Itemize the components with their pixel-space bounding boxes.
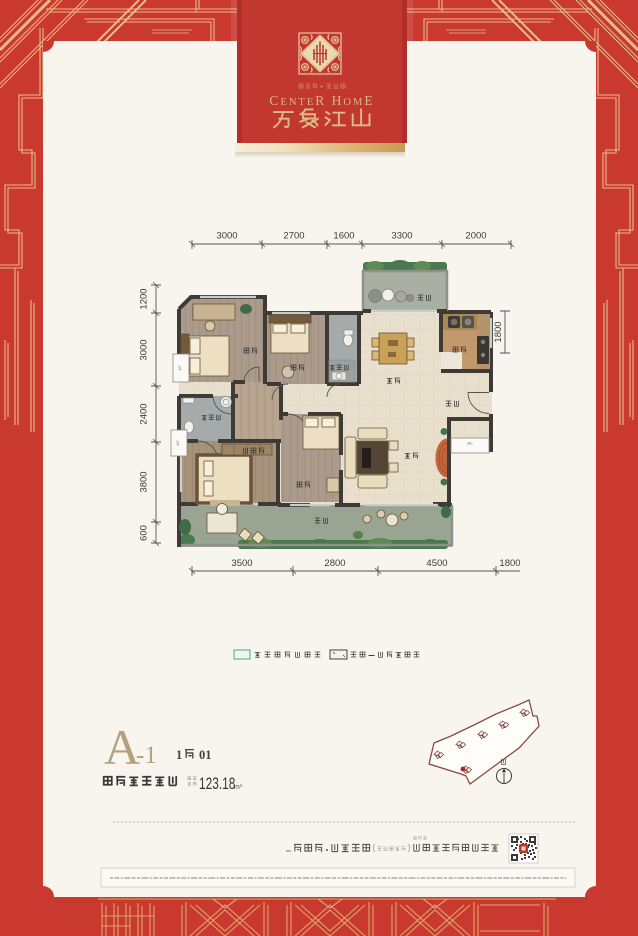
svg-text:1800: 1800 xyxy=(499,558,520,569)
svg-text:3000: 3000 xyxy=(139,339,150,360)
svg-text:600: 600 xyxy=(139,525,150,541)
svg-text:-1: -1 xyxy=(136,742,157,769)
svg-text:3300: 3300 xyxy=(391,231,412,242)
svg-text:1200: 1200 xyxy=(139,288,150,309)
svg-text:4500: 4500 xyxy=(426,558,447,569)
svg-text:2700: 2700 xyxy=(283,231,304,242)
svg-text:1600: 1600 xyxy=(333,231,354,242)
svg-text:A/C: A/C xyxy=(176,440,180,446)
svg-text:A: A xyxy=(104,719,140,775)
svg-text:A/C: A/C xyxy=(178,365,182,371)
svg-text:m2: m2 xyxy=(234,783,243,791)
svg-text:3500: 3500 xyxy=(231,558,252,569)
svg-text:1: 1 xyxy=(176,748,182,762)
svg-text:3800: 3800 xyxy=(139,471,150,492)
svg-text:A/C: A/C xyxy=(467,442,473,446)
svg-text:2800: 2800 xyxy=(324,558,345,569)
svg-text:1800: 1800 xyxy=(493,321,504,342)
svg-text:2000: 2000 xyxy=(465,231,486,242)
svg-text:2400: 2400 xyxy=(139,403,150,424)
svg-text:01: 01 xyxy=(199,748,212,762)
svg-text:123.18: 123.18 xyxy=(199,775,235,794)
svg-text:CENTER HOME: CENTER HOME xyxy=(269,93,374,108)
svg-text:3000: 3000 xyxy=(216,231,237,242)
